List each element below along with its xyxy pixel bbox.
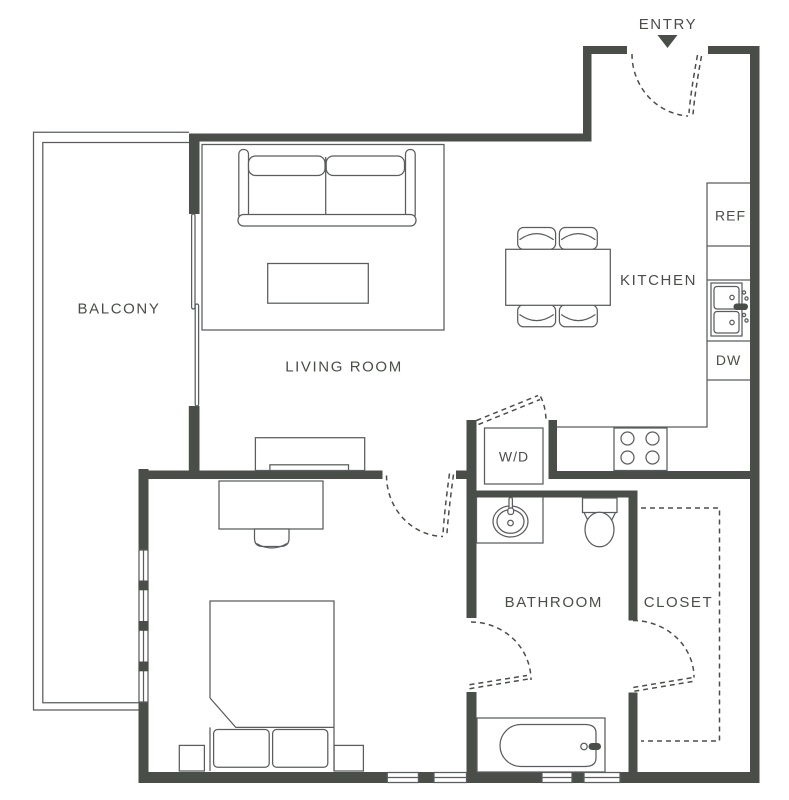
svg-text:CLOSET: CLOSET [644, 594, 714, 611]
svg-text:REF: REF [715, 208, 746, 224]
svg-text:ENTRY: ENTRY [639, 16, 698, 33]
svg-text:W/D: W/D [499, 449, 529, 465]
svg-text:BALCONY: BALCONY [78, 301, 161, 318]
svg-text:BATHROOM: BATHROOM [505, 594, 603, 611]
svg-text:LIVING ROOM: LIVING ROOM [285, 359, 403, 376]
svg-text:DW: DW [716, 352, 741, 368]
svg-text:KITCHEN: KITCHEN [620, 272, 697, 289]
